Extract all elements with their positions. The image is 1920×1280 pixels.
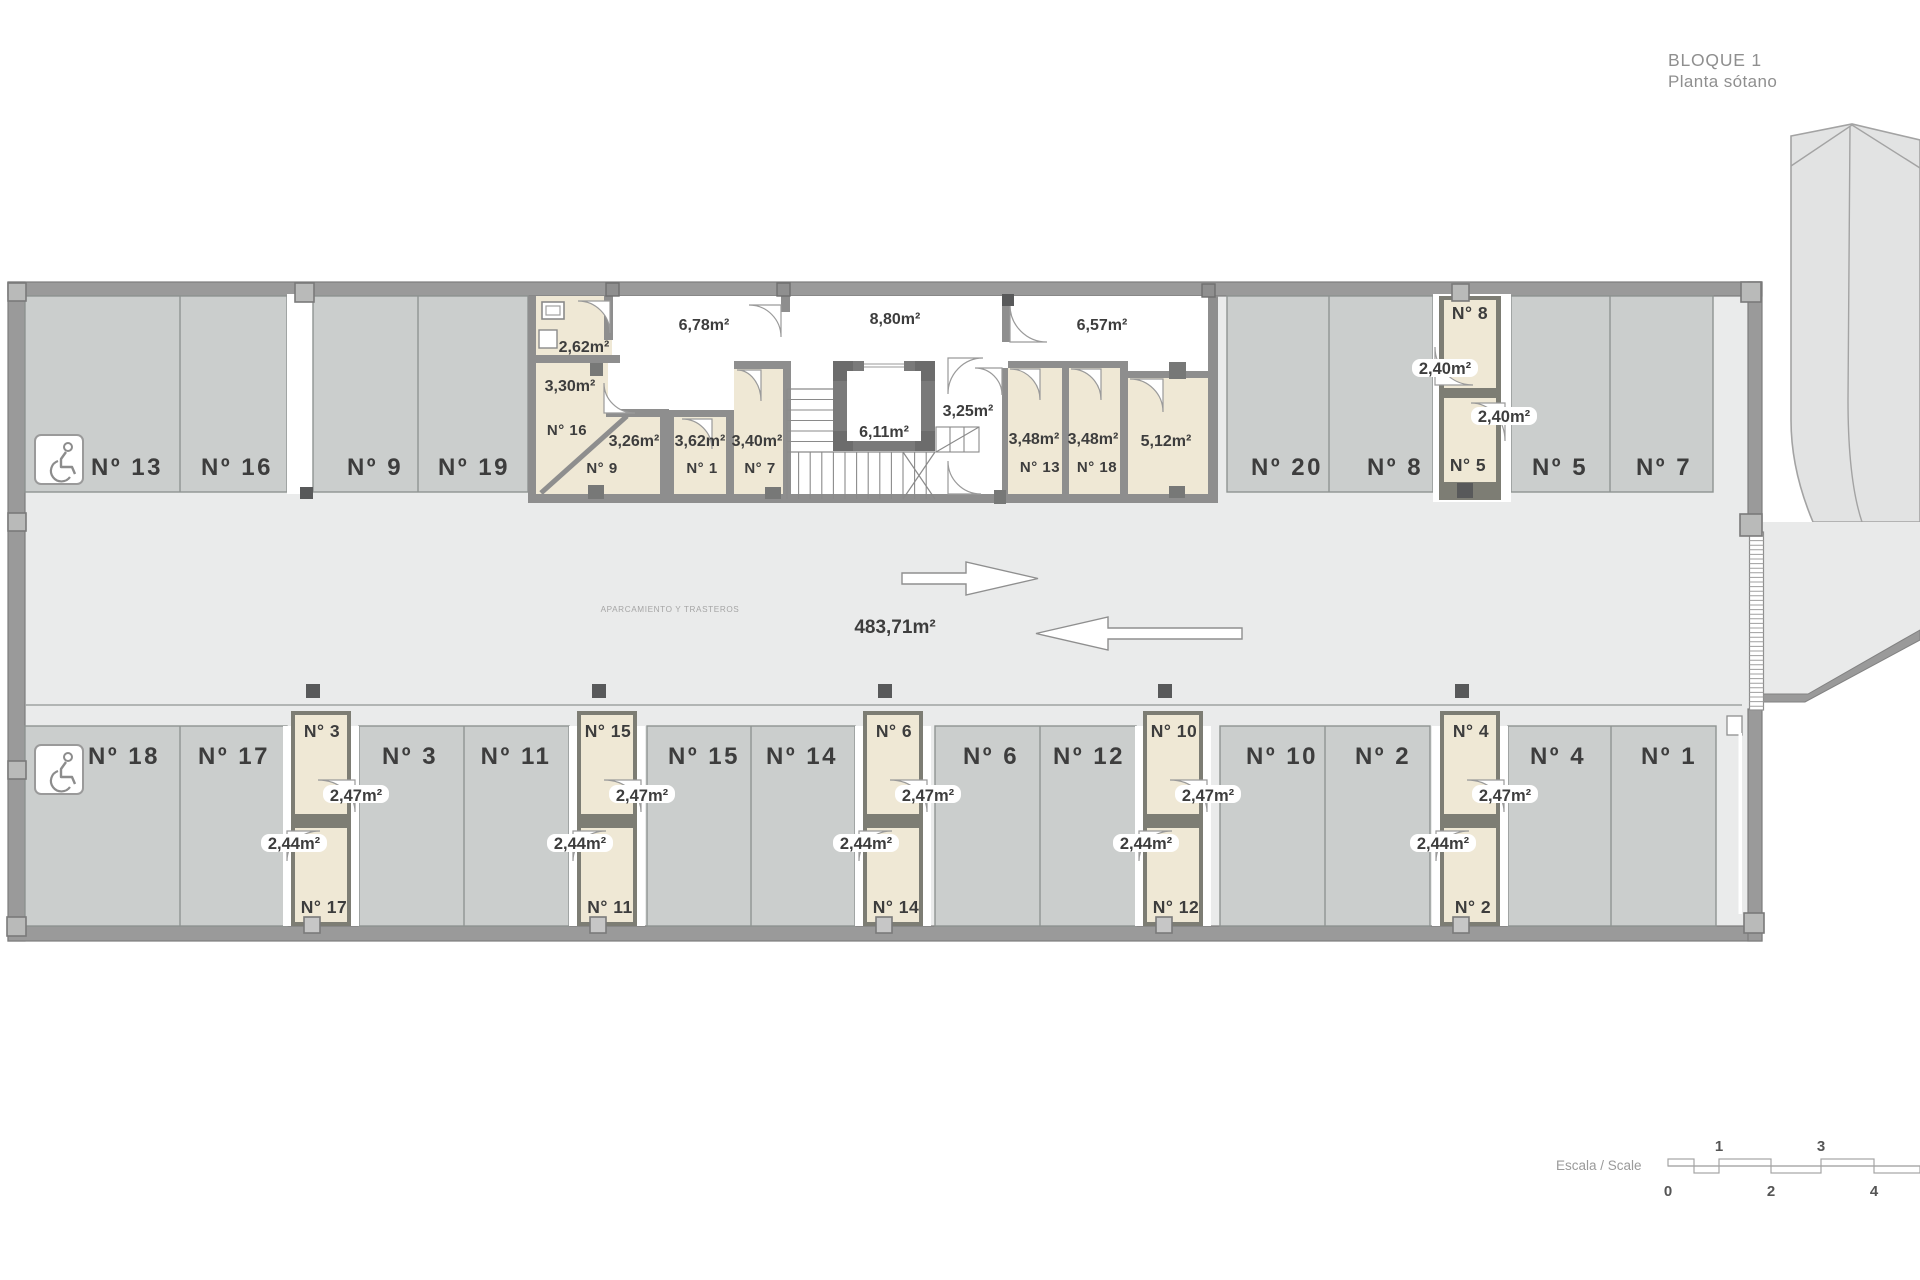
svg-text:3,40m²: 3,40m² — [732, 433, 783, 450]
svg-text:Nº 18: Nº 18 — [88, 743, 160, 770]
svg-text:483,71m²: 483,71m² — [854, 617, 935, 638]
svg-text:Nº 14: Nº 14 — [766, 743, 838, 770]
svg-text:2,47m²: 2,47m² — [1182, 787, 1235, 805]
svg-text:N° 17: N° 17 — [301, 897, 347, 917]
svg-text:4: 4 — [1870, 1183, 1879, 1200]
svg-text:N° 15: N° 15 — [585, 721, 631, 741]
svg-text:N° 11: N° 11 — [587, 897, 633, 917]
svg-text:2,47m²: 2,47m² — [616, 787, 669, 805]
svg-text:N° 2: N° 2 — [1455, 897, 1491, 917]
svg-text:3,48m²: 3,48m² — [1068, 431, 1119, 448]
svg-text:N° 3: N° 3 — [304, 721, 340, 741]
svg-text:N° 5: N° 5 — [1450, 455, 1486, 475]
svg-text:2,62m²: 2,62m² — [559, 339, 610, 356]
svg-text:2,44m²: 2,44m² — [1120, 835, 1173, 853]
svg-text:Nº 10: Nº 10 — [1246, 743, 1318, 770]
svg-text:Nº 20: Nº 20 — [1251, 454, 1323, 481]
svg-text:1: 1 — [1715, 1138, 1723, 1155]
svg-text:Nº 5: Nº 5 — [1532, 454, 1588, 481]
svg-text:3,48m²: 3,48m² — [1009, 431, 1060, 448]
svg-text:2,47m²: 2,47m² — [902, 787, 955, 805]
svg-text:Nº 17: Nº 17 — [198, 743, 270, 770]
svg-text:Nº 2: Nº 2 — [1355, 743, 1411, 770]
svg-text:3,30m²: 3,30m² — [545, 378, 596, 395]
svg-text:Nº 13: Nº 13 — [91, 454, 163, 481]
svg-text:6,78m²: 6,78m² — [679, 317, 730, 334]
svg-text:Nº 15: Nº 15 — [668, 743, 740, 770]
svg-text:3,62m²: 3,62m² — [675, 433, 726, 450]
svg-text:6,57m²: 6,57m² — [1077, 317, 1128, 334]
svg-text:N° 8: N° 8 — [1452, 303, 1488, 323]
svg-text:6,11m²: 6,11m² — [859, 424, 909, 441]
svg-text:N° 4: N° 4 — [1453, 721, 1489, 741]
svg-text:2,40m²: 2,40m² — [1478, 408, 1531, 426]
svg-text:Nº 12: Nº 12 — [1053, 743, 1125, 770]
svg-text:N° 9: N° 9 — [586, 460, 617, 477]
svg-text:2,40m²: 2,40m² — [1419, 360, 1472, 378]
svg-text:N° 1: N° 1 — [686, 460, 717, 477]
svg-text:APARCAMIENTO Y TRASTEROS: APARCAMIENTO Y TRASTEROS — [601, 605, 740, 614]
svg-text:N° 7: N° 7 — [744, 460, 775, 477]
svg-text:N° 10: N° 10 — [1151, 721, 1197, 741]
svg-text:5,12m²: 5,12m² — [1141, 433, 1192, 450]
svg-text:3,26m²: 3,26m² — [609, 433, 660, 450]
svg-text:2,44m²: 2,44m² — [1417, 835, 1470, 853]
svg-text:N° 16: N° 16 — [547, 422, 587, 439]
svg-text:3,25m²: 3,25m² — [943, 403, 994, 420]
svg-text:2,47m²: 2,47m² — [1479, 787, 1532, 805]
svg-text:Nº 9: Nº 9 — [347, 454, 403, 481]
svg-text:BLOQUE 1: BLOQUE 1 — [1668, 50, 1762, 70]
svg-text:Escala / Scale: Escala / Scale — [1556, 1158, 1642, 1173]
svg-text:2,44m²: 2,44m² — [840, 835, 893, 853]
svg-text:N° 6: N° 6 — [876, 721, 912, 741]
svg-text:Nº 4: Nº 4 — [1530, 743, 1586, 770]
svg-text:Nº 19: Nº 19 — [438, 454, 510, 481]
svg-text:Nº 6: Nº 6 — [963, 743, 1019, 770]
svg-text:N° 14: N° 14 — [873, 897, 919, 917]
svg-text:0: 0 — [1664, 1183, 1672, 1200]
svg-text:N° 18: N° 18 — [1077, 459, 1117, 476]
svg-text:2,44m²: 2,44m² — [268, 835, 321, 853]
svg-text:N° 13: N° 13 — [1020, 459, 1060, 476]
svg-text:Nº 7: Nº 7 — [1636, 454, 1692, 481]
svg-text:2: 2 — [1767, 1183, 1775, 1200]
svg-text:Nº 3: Nº 3 — [382, 743, 438, 770]
svg-text:Nº 1: Nº 1 — [1641, 743, 1697, 770]
svg-text:3: 3 — [1817, 1138, 1825, 1155]
svg-text:Planta sótano: Planta sótano — [1668, 72, 1777, 91]
svg-text:2,47m²: 2,47m² — [330, 787, 383, 805]
svg-text:8,80m²: 8,80m² — [870, 311, 921, 328]
svg-text:Nº 11: Nº 11 — [481, 743, 552, 770]
svg-text:N° 12: N° 12 — [1153, 897, 1199, 917]
svg-text:Nº 8: Nº 8 — [1367, 454, 1423, 481]
svg-text:2,44m²: 2,44m² — [554, 835, 607, 853]
svg-text:Nº 16: Nº 16 — [201, 454, 273, 481]
